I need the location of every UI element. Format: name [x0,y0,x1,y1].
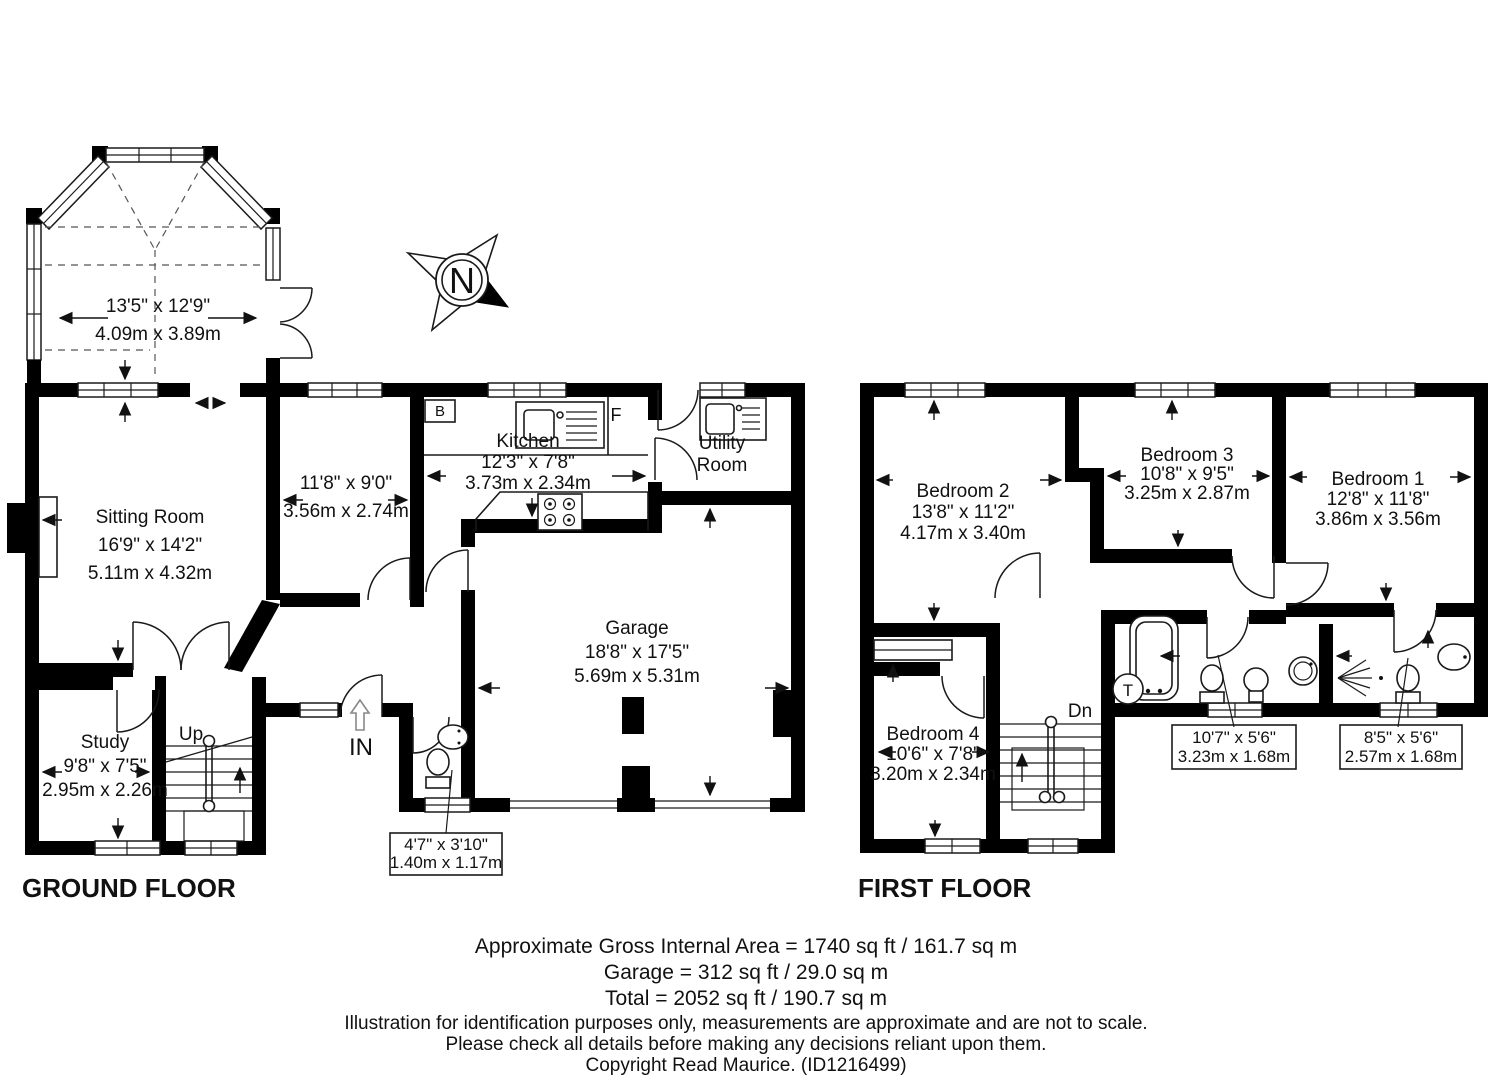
pedestal-basin-icon [1244,668,1268,702]
footer-text: Approximate Gross Internal Area = 1740 s… [344,935,1147,1076]
kitchen-imperial: 12'3" x 7'8" [481,452,575,473]
stairs-down [1000,717,1101,811]
fridge-label: F [611,405,622,425]
compass-rose-icon: N [408,235,508,330]
sitting-room-name: Sitting Room [96,507,205,528]
bedroom-4-imperial: 10'6" x 7'8" [886,744,980,765]
bedroom-2-name: Bedroom 2 [917,481,1010,502]
ground-floor-title: GROUND FLOOR [22,873,236,903]
study-name: Study [81,732,130,753]
entrance-arrow-icon [351,700,369,730]
footer-area-sum: Total = 2052 sq ft / 190.7 sq m [605,987,887,1010]
tank-label: T [1123,681,1133,700]
basin-icon [438,725,468,749]
study-imperial: 9'8" x 7'5" [63,756,146,777]
footer-copyright: Copyright Read Maurice. (ID1216499) [585,1055,906,1076]
wc-imperial: 4'7" x 3'10" [404,835,488,854]
ensuite-metric: 2.57m x 1.68m [1345,747,1457,766]
footer-area-total: Approximate Gross Internal Area = 1740 s… [475,935,1017,958]
first-floor-plan: T [858,383,1488,903]
bay-room-metric: 4.09m x 3.89m [95,324,221,345]
kitchen-metric: 3.73m x 2.34m [465,473,591,494]
dining-room-metric: 3.56m x 2.74m [283,501,409,522]
bedroom-4-metric: 3.20m x 2.34m [870,764,996,785]
floorplan-drawing: 4'7" x 3'10" 1.40m x 1.17m 13'5" x 12'9"… [0,0,1493,1080]
bedroom-2-imperial: 13'8" x 11'2" [912,502,1015,523]
floorplan-page: 4'7" x 3'10" 1.40m x 1.17m 13'5" x 12'9"… [0,0,1493,1080]
garage-metric: 5.69m x 5.31m [574,666,700,687]
vanity-basin-icon [1289,657,1317,685]
bathroom-imperial: 10'7" x 5'6" [1192,728,1276,747]
footer-disclaimer-1: Illustration for identification purposes… [344,1013,1147,1034]
bedroom-2-metric: 4.17m x 3.40m [900,523,1026,544]
study-metric: 2.95m x 2.26m [42,780,168,801]
ensuite-imperial: 8'5" x 5'6" [1364,728,1438,747]
bedroom-1-metric: 3.86m x 3.56m [1315,509,1441,530]
bay-room-imperial: 13'5" x 12'9" [106,296,210,317]
shower-icon [1338,660,1383,696]
bedroom-3-imperial: 10'8" x 9'5" [1140,464,1234,485]
utility-room-name-1: Utility [699,433,746,454]
tank-icon: T [1113,674,1143,704]
stairs-up [166,736,252,842]
wall-basin-icon [1438,644,1470,670]
hob-icon [538,494,582,530]
bathroom-metric: 3.23m x 1.68m [1178,747,1290,766]
footer-area-garage: Garage = 312 sq ft / 29.0 sq m [604,961,888,984]
entrance-label: IN [349,734,373,761]
footer-disclaimer-2: Please check all details before making a… [446,1034,1047,1055]
toilet-icon [426,749,450,788]
kitchen-name: Kitchen [496,431,559,452]
wc-metric: 1.40m x 1.17m [390,853,502,872]
bathroom-fixtures: T [1113,616,1470,704]
sitting-room-imperial: 16'9" x 14'2" [98,535,202,556]
stairs-down-label: Dn [1068,701,1092,722]
boiler-label: B [435,403,445,420]
toilet-icon [1396,665,1420,703]
first-floor-title: FIRST FLOOR [858,873,1032,903]
utility-room-name-2: Room [697,455,748,476]
bedroom-3-name: Bedroom 3 [1141,445,1234,466]
bedroom-4-name: Bedroom 4 [887,724,980,745]
fireplace-icon [39,497,57,577]
bedroom-3-metric: 3.25m x 2.87m [1124,483,1250,504]
sitting-room-metric: 5.11m x 4.32m [88,563,212,584]
compass-north-label: N [449,260,475,301]
ground-floor-plan: 4'7" x 3'10" 1.40m x 1.17m 13'5" x 12'9"… [7,146,805,903]
toilet-icon [1200,665,1224,703]
stairs-up-label: Up [179,724,203,745]
garage-imperial: 18'8" x 17'5" [585,642,689,663]
bay-room-structure [26,146,280,390]
bedroom-1-name: Bedroom 1 [1332,469,1425,490]
garage-name: Garage [605,618,668,639]
dining-room-imperial: 11'8" x 9'0" [300,473,392,494]
bedroom-1-imperial: 12'8" x 11'8" [1327,489,1430,510]
